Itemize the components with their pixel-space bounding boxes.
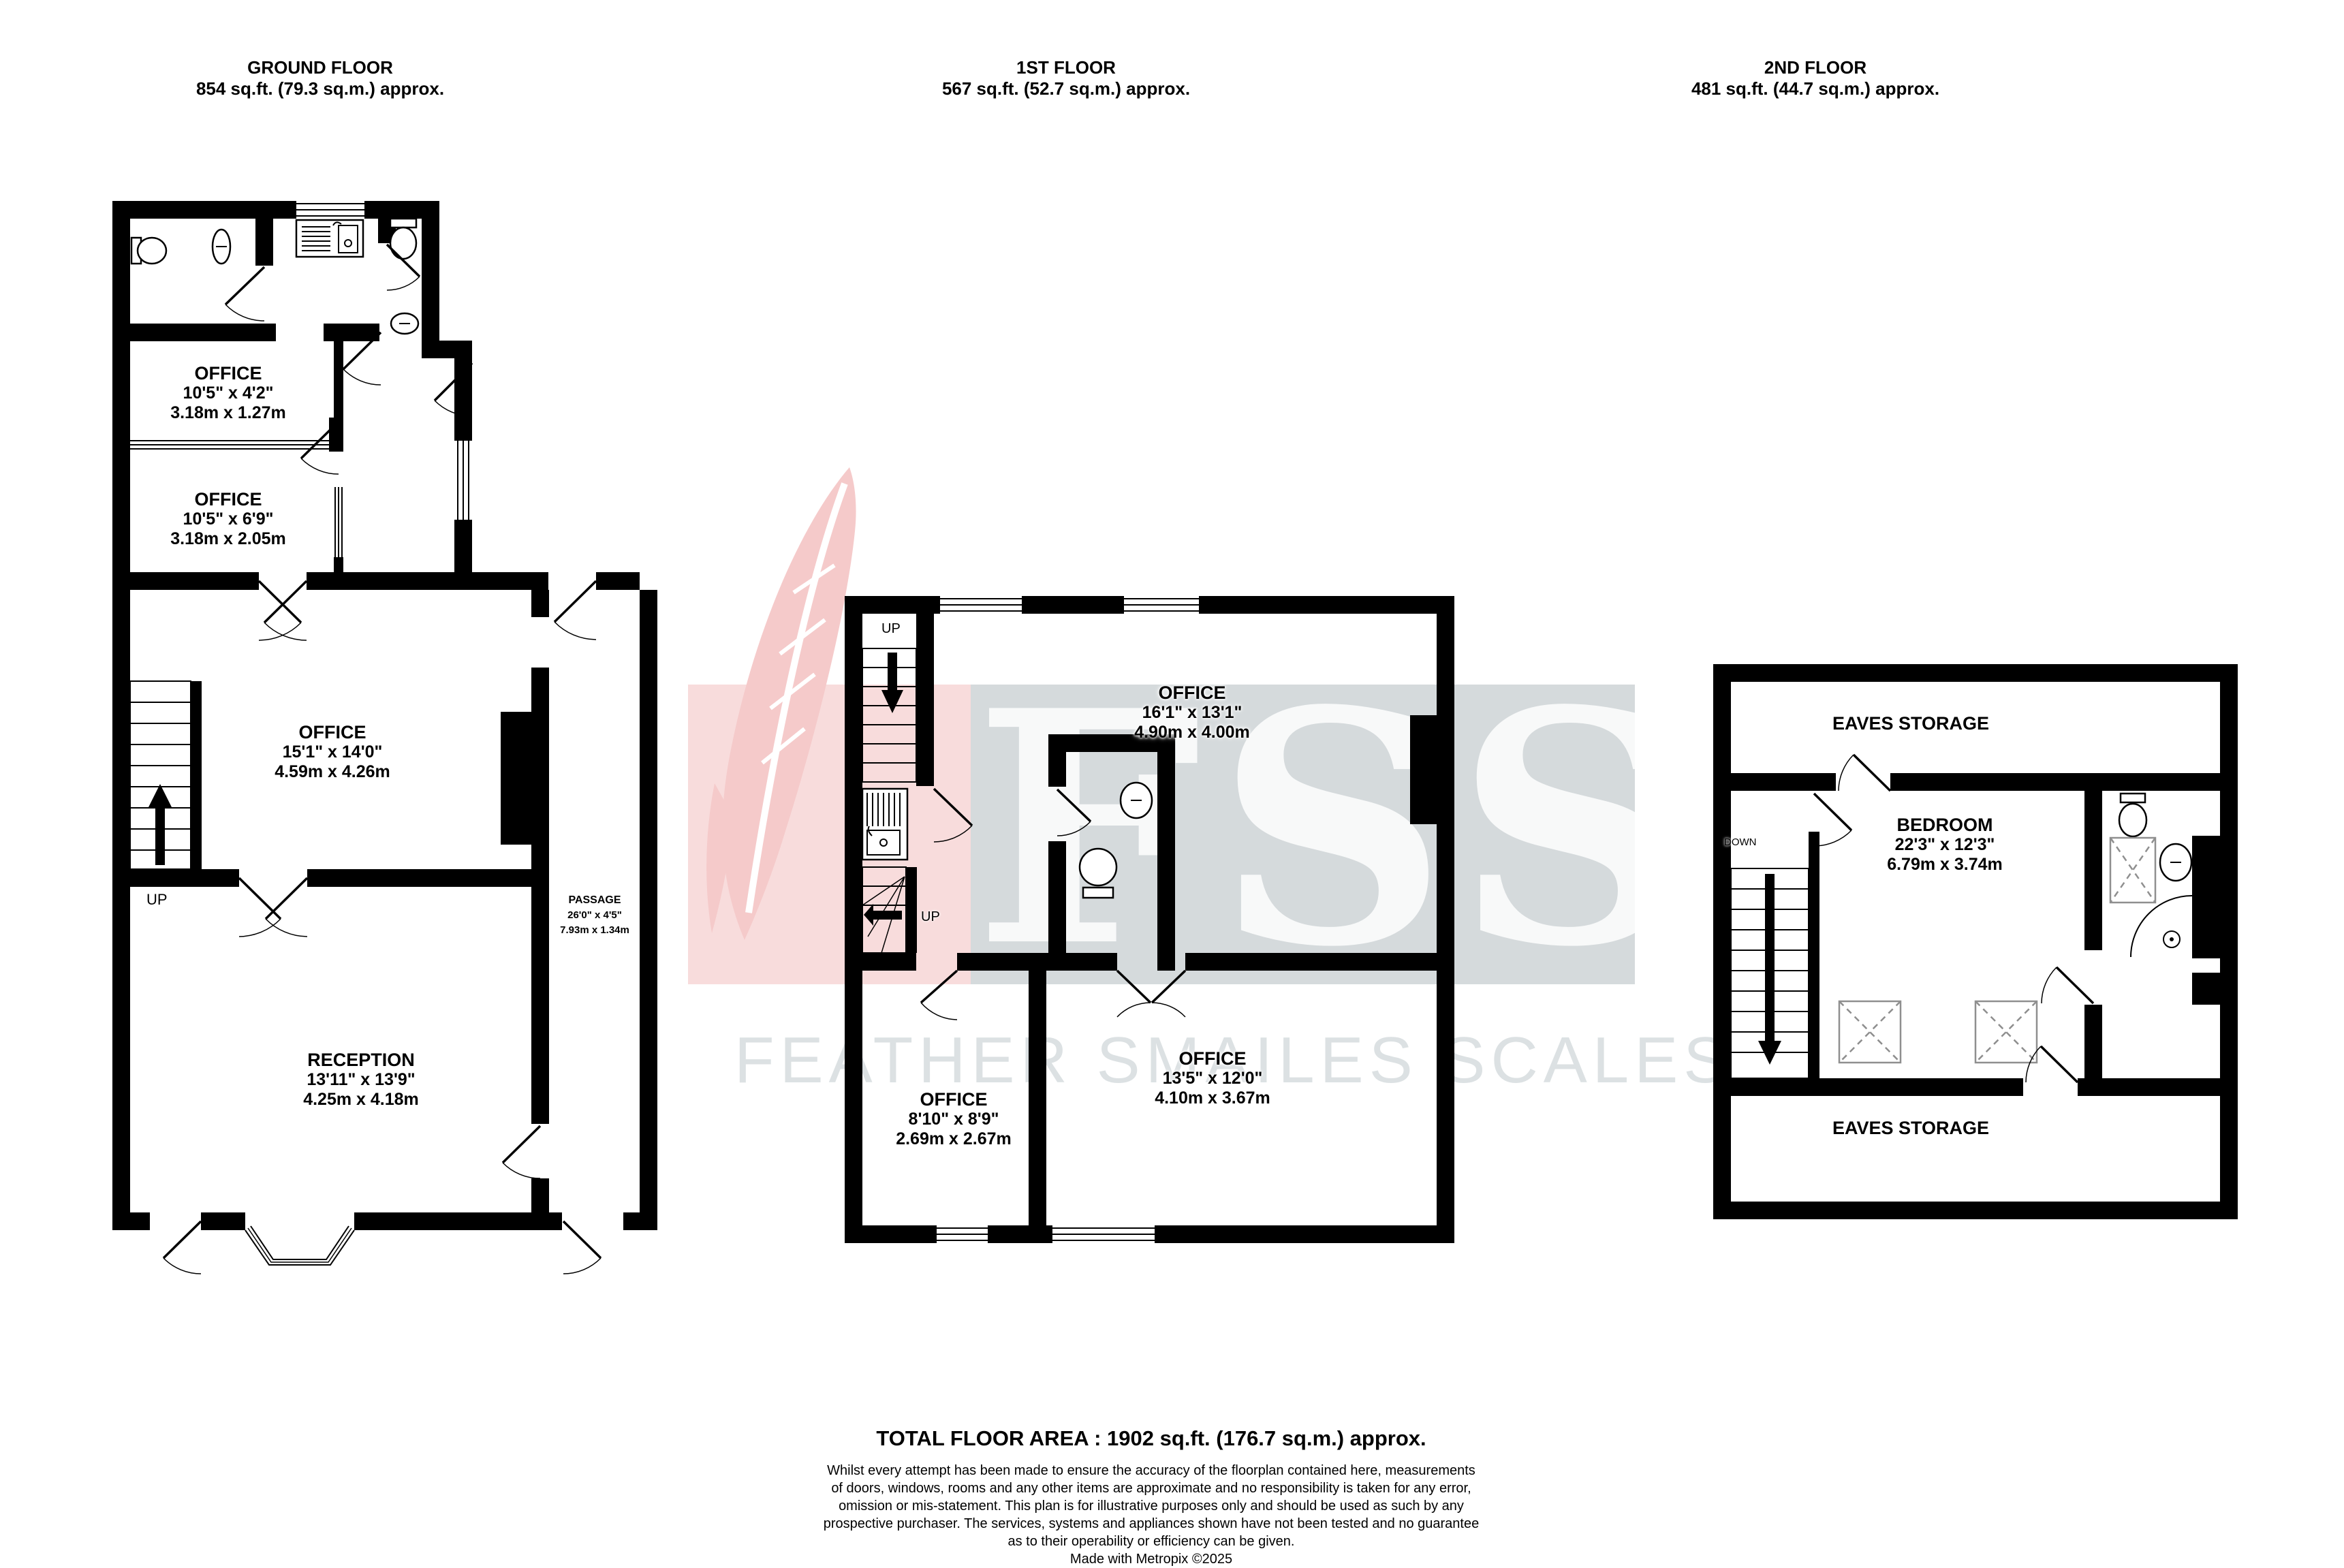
- stairs: [1731, 868, 1809, 1078]
- room-label-office-mid-first: OFFICE 13'5" x 12'0" 4.10m x 3.67m: [1155, 1049, 1270, 1108]
- floor-title: GROUND FLOOR: [196, 57, 444, 78]
- disclaimer-line: of doors, windows, rooms and any other i…: [620, 1479, 1683, 1497]
- bay-window: [245, 1226, 354, 1265]
- chimney-breast: [1410, 715, 1437, 824]
- chimney-breast: [2192, 836, 2221, 1005]
- room-label-eaves-bottom: EAVES STORAGE: [1832, 1118, 1989, 1138]
- skylight: [1839, 1001, 2037, 1063]
- room-label-bedroom: BEDROOM 22'3" x 12'3" 6.79m x 3.74m: [1887, 815, 2003, 875]
- disclaimer-line: Whilst every attempt has been made to en…: [620, 1462, 1683, 1479]
- first-floor-header: 1ST FLOOR 567 sq.ft. (52.7 sq.m.) approx…: [942, 57, 1190, 99]
- kitchen-sink-icon: [862, 789, 907, 860]
- toilet-icon: [131, 219, 416, 264]
- room-label-office-small-first: OFFICE 8'10" x 8'9" 2.69m x 2.67m: [896, 1090, 1012, 1149]
- disclaimer-line: prospective purchaser. The services, sys…: [620, 1515, 1683, 1533]
- floor-area: 567 sq.ft. (52.7 sq.m.) approx.: [942, 78, 1190, 99]
- kitchen-sink-icon: [296, 220, 363, 257]
- floor-title: 1ST FLOOR: [942, 57, 1190, 78]
- room-label-office-main: OFFICE 15'1" x 14'0" 4.59m x 4.26m: [275, 723, 390, 782]
- stairs-up-label: UP: [146, 891, 168, 909]
- floor-title: 2ND FLOOR: [1691, 57, 1939, 78]
- shower-tray-icon: [2110, 838, 2155, 903]
- stairs: [130, 681, 191, 869]
- corner-shower-icon: [2131, 896, 2192, 957]
- chimney-breast: [501, 712, 531, 845]
- stairs-down-label: DOWN: [1724, 836, 1757, 848]
- total-floor-area: TOTAL FLOOR AREA : 1902 sq.ft. (176.7 sq…: [620, 1426, 1683, 1451]
- room-label-reception: RECEPTION 13'11" x 13'9" 4.25m x 4.18m: [303, 1050, 419, 1110]
- disclaimer-line: as to their operability or efficiency ca…: [620, 1533, 1683, 1550]
- room-label-passage: PASSAGE 26'0" x 4'5" 7.93m x 1.34m: [560, 893, 629, 938]
- stairs-up-label-first-top: UP: [881, 621, 901, 637]
- sink-icon: [1121, 783, 1152, 818]
- floor-area: 854 sq.ft. (79.3 sq.m.) approx.: [196, 78, 444, 99]
- disclaimer-line: omission or mis-statement. This plan is …: [620, 1497, 1683, 1515]
- stairs-up-label-first-bottom: UP: [921, 909, 940, 925]
- room-label-office-mid: OFFICE 10'5" x 6'9" 3.18m x 2.05m: [170, 490, 286, 549]
- room-label-eaves-top: EAVES STORAGE: [1832, 714, 1989, 734]
- sink-icon: [2160, 844, 2191, 881]
- door-swing: [1814, 755, 2093, 1082]
- second-floor-header: 2ND FLOOR 481 sq.ft. (44.7 sq.m.) approx…: [1691, 57, 1939, 99]
- ground-floor-header: GROUND FLOOR 854 sq.ft. (79.3 sq.m.) app…: [196, 57, 444, 99]
- floorplan-page: { "floors": { "ground": {"title": "GROUN…: [0, 0, 2344, 1565]
- toilet-icon: [1080, 849, 1116, 898]
- room-label-office-large: OFFICE 16'1" x 13'1" 4.90m x 4.00m: [1134, 683, 1250, 742]
- footer: TOTAL FLOOR AREA : 1902 sq.ft. (176.7 sq…: [620, 1426, 1683, 1568]
- floor-area: 481 sq.ft. (44.7 sq.m.) approx.: [1691, 78, 1939, 99]
- room-label-office-small: OFFICE 10'5" x 4'2" 3.18m x 1.27m: [170, 364, 286, 423]
- metropix-credit: Made with Metropix ©2025: [620, 1550, 1683, 1568]
- toilet-icon: [2119, 794, 2146, 836]
